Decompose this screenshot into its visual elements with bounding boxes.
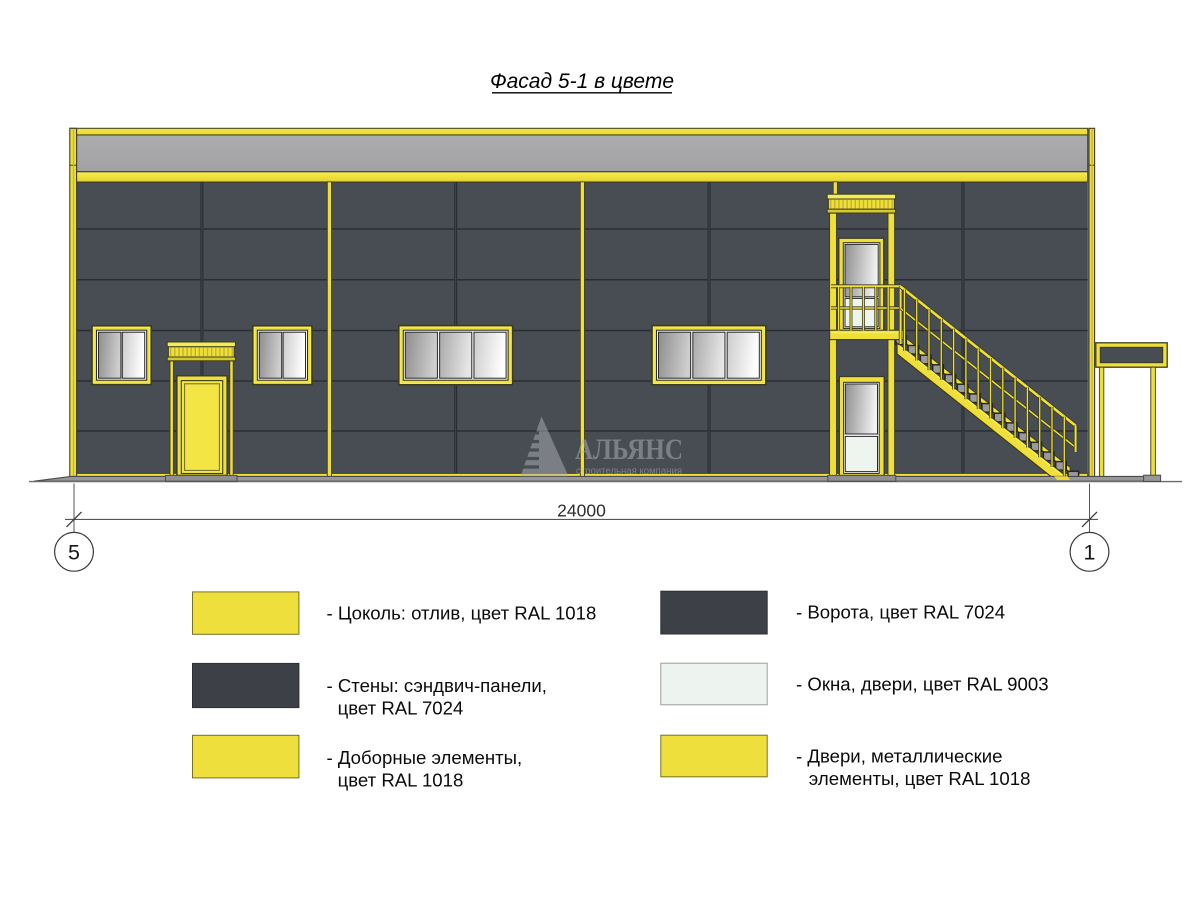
svg-text:- Стены: сэндвич-панели,: - Стены: сэндвич-панели, (327, 675, 547, 696)
svg-text:- Двери, металлические: - Двери, металлические (796, 746, 1002, 767)
svg-text:элементы, цвет RAL 1018: элементы, цвет RAL 1018 (809, 768, 1031, 789)
svg-text:5: 5 (68, 540, 80, 564)
svg-text:- Ворота, цвет RAL 7024: - Ворота, цвет RAL 7024 (796, 602, 1005, 623)
svg-text:Фасад 5-1 в цвете: Фасад 5-1 в цвете (490, 70, 674, 93)
svg-text:строительная компания: строительная компания (576, 466, 682, 477)
svg-text:- Доборные элементы,: - Доборные элементы, (327, 747, 523, 768)
svg-text:цвет RAL 1018: цвет RAL 1018 (338, 770, 464, 791)
svg-text:АЛЬЯНС: АЛЬЯНС (575, 433, 683, 466)
svg-text:1: 1 (1084, 540, 1096, 564)
svg-text:- Цоколь: отлив, цвет RAL 1018: - Цоколь: отлив, цвет RAL 1018 (327, 603, 597, 624)
svg-text:- Окна, двери, цвет RAL 9003: - Окна, двери, цвет RAL 9003 (796, 674, 1049, 695)
svg-text:24000: 24000 (557, 501, 606, 521)
svg-text:цвет RAL 7024: цвет RAL 7024 (338, 698, 464, 719)
